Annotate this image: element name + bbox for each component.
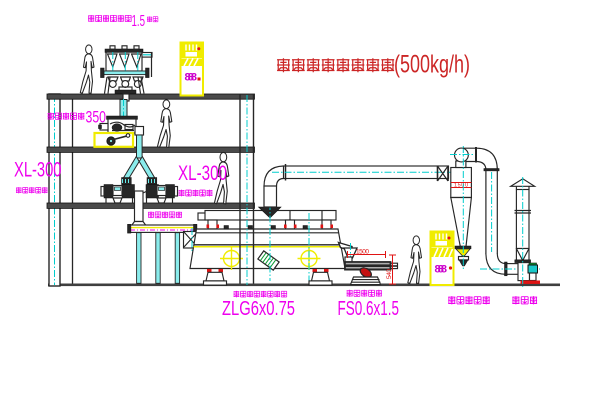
svg-text:ZLG6x0.75: ZLG6x0.75 xyxy=(222,298,295,320)
svg-text:888: 888 xyxy=(435,264,448,276)
svg-text:(500kg/h): (500kg/h) xyxy=(394,51,470,79)
svg-text:540: 540 xyxy=(386,269,393,279)
svg-text:1500: 1500 xyxy=(356,249,369,256)
svg-text:888: 888 xyxy=(185,72,198,84)
svg-text:350: 350 xyxy=(86,108,107,127)
svg-text:FS0.6x1.5: FS0.6x1.5 xyxy=(338,298,400,320)
svg-text:1.5: 1.5 xyxy=(132,13,146,30)
svg-text:1500: 1500 xyxy=(454,183,468,189)
svg-text:XL-300: XL-300 xyxy=(14,159,62,182)
svg-text:XL-300: XL-300 xyxy=(178,162,227,185)
